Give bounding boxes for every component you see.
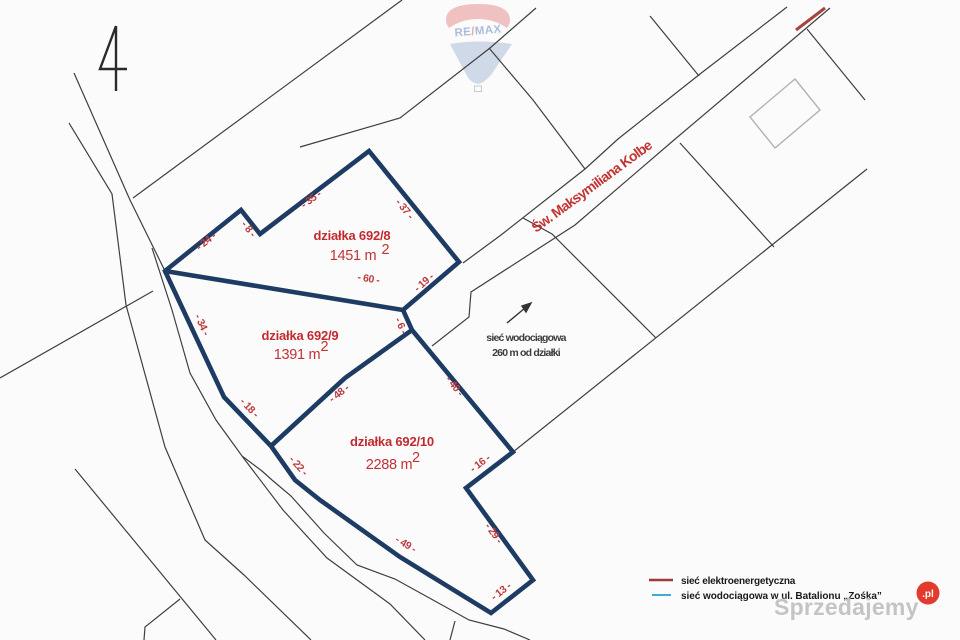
svg-text:sieć elektroenergetyczna: sieć elektroenergetyczna [681, 576, 796, 587]
svg-text:2288 m: 2288 m [366, 457, 413, 473]
svg-text:2: 2 [321, 339, 329, 355]
svg-text:działka 692/8: działka 692/8 [314, 228, 391, 243]
svg-text:sieć wodociągowa: sieć wodociągowa [486, 332, 566, 344]
svg-text:działka 692/10: działka 692/10 [350, 434, 434, 449]
svg-text:2: 2 [382, 242, 390, 258]
svg-text:1391 m: 1391 m [274, 347, 321, 363]
svg-text:Sprzedajemy: Sprzedajemy [774, 594, 919, 620]
svg-text:2: 2 [412, 450, 420, 466]
svg-text:1451 m: 1451 m [330, 248, 377, 264]
svg-text:260 m od działki: 260 m od działki [492, 347, 561, 359]
svg-text:.pl: .pl [922, 589, 934, 600]
